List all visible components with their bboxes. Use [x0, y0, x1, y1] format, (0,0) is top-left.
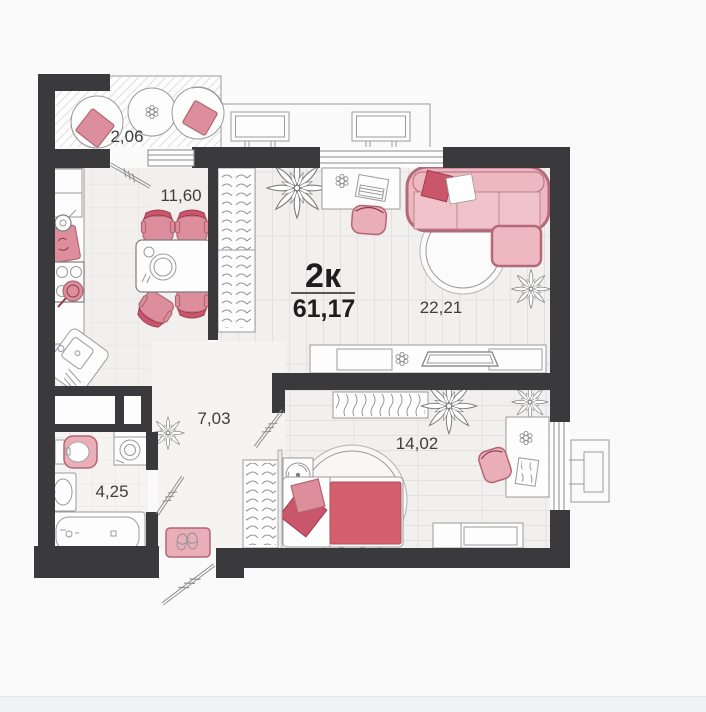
dresser-icon [433, 523, 523, 548]
desk-icon [506, 417, 549, 497]
window-marker-icon [231, 112, 289, 147]
floorplan-canvas: 2,06 11,60 22,21 7,03 14,02 4,25 2к 61,1… [0, 0, 706, 712]
pillow-icon [291, 479, 325, 513]
window-marker-icon [352, 112, 410, 147]
balcony-area-label: 2,06 [110, 127, 143, 146]
floorplan-page: 2,06 11,60 22,21 7,03 14,02 4,25 2к 61,1… [0, 0, 706, 712]
living-area-label: 22,21 [420, 298, 463, 317]
plan-type-label: 2к [305, 257, 342, 295]
kitchen-area-label: 11,60 [160, 186, 201, 205]
vent-shaft-icon [38, 386, 152, 432]
footer-divider [0, 696, 706, 712]
tv-icon [422, 352, 498, 366]
toilet-icon [55, 436, 97, 468]
bathroom-area-label: 4,25 [95, 482, 128, 501]
entrance-door-swing-icon [161, 562, 217, 606]
wardrobe-icon [218, 168, 255, 332]
plant-icon [512, 270, 550, 308]
blanket-icon [330, 482, 401, 544]
balcony-chair-icon [172, 87, 224, 139]
total-area-label: 61,17 [293, 295, 356, 323]
window-icon [148, 150, 194, 166]
notebook-icon [515, 458, 538, 487]
dining-table-icon [132, 210, 212, 332]
office-chair-icon [351, 205, 387, 235]
laptop-icon [355, 175, 388, 202]
hallway-area-label: 7,03 [197, 409, 230, 428]
ac-ledge-icon [568, 440, 609, 502]
shelf-icon [333, 392, 428, 418]
desk-icon [322, 168, 400, 209]
window-icon [551, 422, 569, 510]
partition [278, 450, 282, 550]
bed-icon [279, 477, 403, 547]
washing-machine-icon [114, 431, 148, 465]
closet-icon [243, 460, 279, 548]
window-icon [320, 148, 443, 167]
bedroom-area-label: 14,02 [396, 434, 439, 453]
tv-console-icon [310, 345, 546, 373]
pillow-icon [446, 174, 476, 204]
doormat-icon [166, 528, 210, 557]
